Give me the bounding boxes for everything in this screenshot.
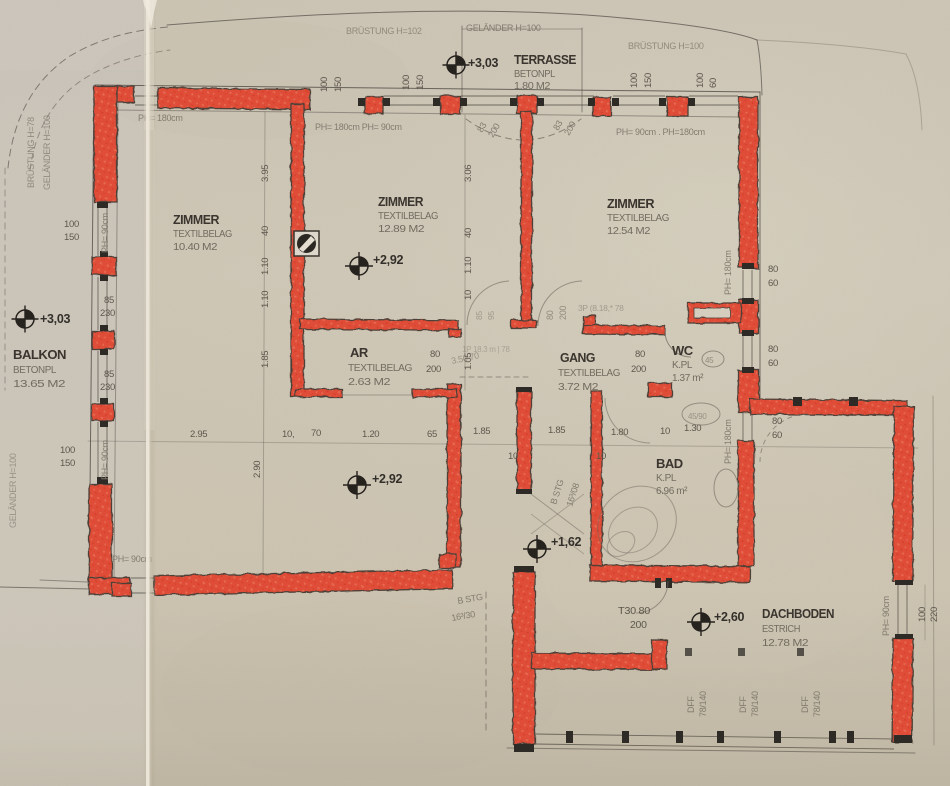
- svg-text:40: 40: [260, 226, 271, 236]
- svg-text:1.10: 1.10: [463, 257, 474, 274]
- svg-text:13.65 M2: 13.65 M2: [13, 379, 66, 390]
- svg-text:100: 100: [64, 219, 79, 230]
- svg-text:PH= 90cm . PH=180cm: PH= 90cm . PH=180cm: [616, 127, 705, 137]
- svg-text:10,: 10,: [282, 429, 294, 440]
- svg-text:10: 10: [596, 451, 606, 462]
- svg-text:200: 200: [558, 306, 568, 320]
- svg-text:80: 80: [430, 349, 440, 360]
- svg-text:BRÜSTUNG H=102: BRÜSTUNG H=102: [346, 26, 422, 36]
- svg-text:TEXTILBELAG: TEXTILBELAG: [348, 363, 413, 374]
- svg-text:150: 150: [64, 232, 79, 243]
- svg-text:PH= 90cm: PH= 90cm: [100, 213, 110, 253]
- svg-text:BALKON: BALKON: [13, 347, 66, 362]
- svg-text:WC: WC: [672, 343, 694, 358]
- svg-text:+1,62: +1,62: [551, 535, 581, 549]
- svg-text:PH= 180cm PH= 90cm: PH= 180cm PH= 90cm: [315, 122, 402, 132]
- svg-text:10: 10: [660, 426, 670, 437]
- svg-text:60: 60: [772, 430, 782, 441]
- svg-text:PH= 90cm: PH= 90cm: [100, 440, 110, 480]
- svg-text:1.37 m²: 1.37 m²: [672, 373, 704, 384]
- svg-text:2.63 M2: 2.63 M2: [348, 377, 391, 388]
- svg-text:DACHBODEN: DACHBODEN: [762, 606, 834, 621]
- svg-text:45: 45: [705, 356, 714, 365]
- svg-text:BETONPL: BETONPL: [514, 69, 556, 80]
- svg-text:BAD: BAD: [656, 456, 683, 471]
- svg-text:BRÜSTUNG H=100: BRÜSTUNG H=100: [628, 41, 704, 51]
- svg-text:T30 80: T30 80: [618, 605, 650, 617]
- svg-text:TEXTILBELAG: TEXTILBELAG: [607, 213, 670, 224]
- svg-text:200: 200: [630, 619, 647, 631]
- svg-text:TERRASSE: TERRASSE: [514, 52, 577, 67]
- svg-text:1P 18.3 m | 78: 1P 18.3 m | 78: [462, 345, 510, 354]
- svg-text:1.80: 1.80: [611, 427, 628, 438]
- svg-text:100: 100: [319, 77, 330, 92]
- svg-text:GANG: GANG: [560, 350, 595, 365]
- svg-text:78/140: 78/140: [698, 691, 708, 717]
- svg-text:TEXTILBELAG: TEXTILBELAG: [558, 368, 621, 379]
- svg-text:95: 95: [486, 311, 496, 320]
- svg-text:80: 80: [635, 349, 645, 360]
- svg-text:150: 150: [333, 77, 344, 92]
- svg-text:1.85: 1.85: [473, 426, 490, 437]
- svg-text:DFF: DFF: [738, 696, 748, 713]
- svg-text:60: 60: [708, 78, 719, 88]
- svg-text:220: 220: [929, 607, 940, 622]
- svg-text:85: 85: [104, 369, 114, 380]
- svg-text:6.96 m²: 6.96 m²: [656, 486, 688, 497]
- svg-text:12.54 M2: 12.54 M2: [607, 226, 651, 237]
- svg-text:85: 85: [474, 311, 484, 320]
- svg-text:1.80 M2: 1.80 M2: [514, 81, 551, 92]
- svg-text:70: 70: [311, 428, 321, 439]
- svg-text:230: 230: [100, 382, 115, 393]
- svg-text:80: 80: [545, 310, 555, 320]
- svg-text:2.95: 2.95: [190, 429, 207, 440]
- svg-text:TEXTILBELAG: TEXTILBELAG: [173, 229, 233, 240]
- svg-text:3P (8.18,* 78: 3P (8.18,* 78: [578, 303, 624, 313]
- svg-text:3.72 M2: 3.72 M2: [558, 382, 599, 393]
- svg-text:+2,92: +2,92: [373, 253, 403, 267]
- svg-text:150: 150: [60, 458, 75, 469]
- svg-text:78/140: 78/140: [812, 691, 822, 717]
- svg-text:12.78 M2: 12.78 M2: [762, 638, 809, 649]
- svg-text:100: 100: [401, 75, 412, 90]
- svg-text:100: 100: [917, 607, 928, 622]
- svg-text:3.95: 3.95: [260, 165, 271, 182]
- svg-text:230: 230: [100, 308, 115, 319]
- svg-text:12.89 M2: 12.89 M2: [378, 224, 425, 235]
- svg-text:1.10: 1.10: [260, 258, 271, 275]
- svg-text:1.85: 1.85: [548, 425, 565, 436]
- svg-text:PH= 180cm: PH= 180cm: [723, 419, 733, 464]
- svg-text:PH= 90cm: PH= 90cm: [881, 596, 891, 636]
- svg-text:1.30: 1.30: [684, 423, 701, 434]
- svg-text:ZIMMER: ZIMMER: [378, 194, 424, 209]
- svg-text:PH= 180cm: PH= 180cm: [723, 250, 733, 295]
- svg-text:10.40 M2: 10.40 M2: [173, 242, 218, 253]
- svg-text:BRÜSTUNG H=78: BRÜSTUNG H=78: [26, 117, 36, 188]
- svg-text:GELÄNDER H=100: GELÄNDER H=100: [42, 115, 52, 190]
- svg-text:10: 10: [508, 451, 518, 462]
- svg-text:65: 65: [427, 429, 437, 440]
- svg-text:3.06: 3.06: [463, 165, 474, 182]
- svg-text:+2,60: +2,60: [714, 610, 744, 624]
- svg-text:K.PL: K.PL: [672, 360, 693, 371]
- svg-text:10: 10: [463, 290, 474, 300]
- svg-text:1.85: 1.85: [260, 351, 271, 368]
- svg-text:78/140: 78/140: [750, 691, 760, 717]
- svg-text:200: 200: [426, 364, 441, 375]
- svg-text:GELÄNDER H=100: GELÄNDER H=100: [466, 23, 541, 33]
- svg-text:AR: AR: [350, 345, 369, 360]
- svg-text:+2,92: +2,92: [372, 472, 402, 486]
- svg-text:150: 150: [643, 73, 654, 88]
- svg-text:60: 60: [768, 278, 778, 289]
- svg-text:80: 80: [768, 264, 778, 275]
- svg-text:DFF: DFF: [800, 696, 810, 713]
- svg-text:100: 100: [60, 445, 75, 456]
- svg-text:200: 200: [631, 364, 646, 375]
- svg-text:80: 80: [772, 416, 782, 427]
- svg-text:1.20: 1.20: [362, 429, 379, 440]
- svg-text:+3,03: +3,03: [468, 56, 498, 70]
- svg-text:DFF: DFF: [686, 696, 696, 713]
- svg-text:BETONPL: BETONPL: [13, 365, 57, 376]
- svg-text:GELÄNDER H=100: GELÄNDER H=100: [8, 453, 18, 528]
- svg-text:80: 80: [768, 344, 778, 355]
- svg-text:100: 100: [629, 73, 640, 88]
- svg-text:TEXTILBELAG: TEXTILBELAG: [378, 211, 439, 222]
- svg-text:2.90: 2.90: [252, 461, 263, 478]
- svg-text:1.10: 1.10: [260, 291, 271, 308]
- svg-text:ZIMMER: ZIMMER: [607, 196, 655, 211]
- svg-text:ZIMMER: ZIMMER: [173, 212, 220, 227]
- svg-text:K.PL: K.PL: [656, 473, 677, 484]
- svg-text:150: 150: [415, 75, 426, 90]
- svg-text:60: 60: [768, 358, 778, 369]
- svg-text:+3,03: +3,03: [40, 312, 70, 326]
- svg-text:ESTRICH: ESTRICH: [762, 624, 800, 635]
- svg-text:45/90: 45/90: [688, 412, 707, 421]
- svg-text:85: 85: [104, 295, 114, 306]
- svg-text:100: 100: [695, 73, 706, 88]
- svg-text:40: 40: [463, 228, 474, 238]
